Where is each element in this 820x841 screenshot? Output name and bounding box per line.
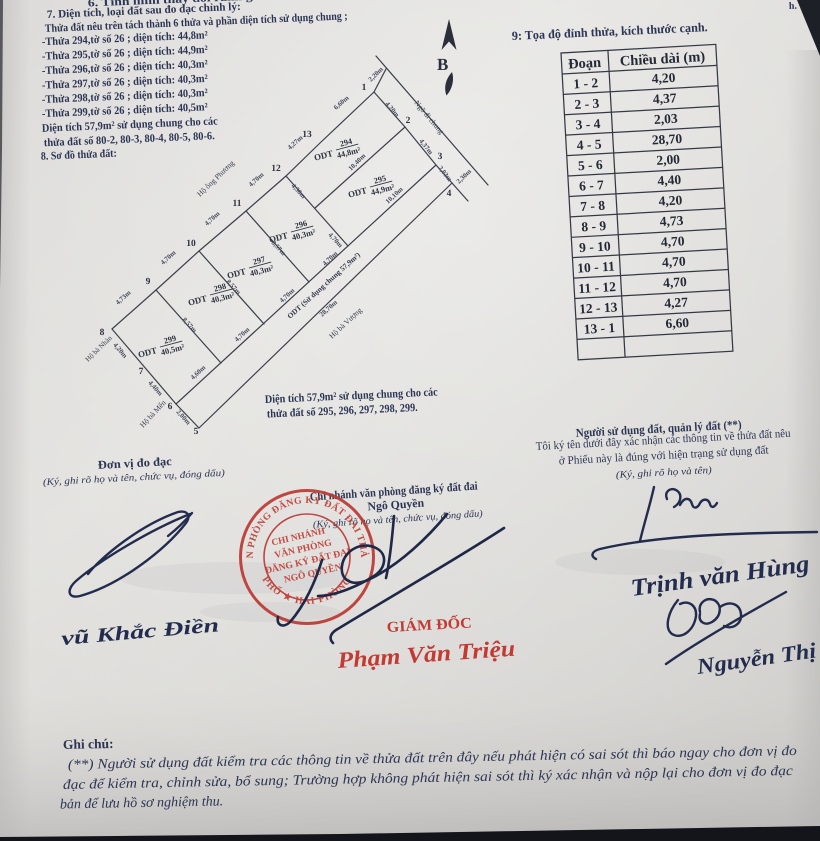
svg-text:6: 6 bbox=[168, 402, 173, 412]
svg-text:Ghi chú:: Ghi chú: bbox=[63, 736, 114, 752]
svg-text:4 - 5: 4 - 5 bbox=[576, 136, 602, 152]
svg-text:4,70: 4,70 bbox=[662, 254, 687, 270]
svg-text:9: 9 bbox=[146, 277, 151, 287]
svg-text:6 - 7: 6 - 7 bbox=[579, 177, 605, 193]
svg-text:3: 3 bbox=[438, 152, 443, 162]
svg-text:12 - 13: 12 - 13 bbox=[579, 299, 618, 316]
svg-text:10: 10 bbox=[186, 239, 196, 249]
svg-text:4: 4 bbox=[447, 189, 452, 199]
svg-text:4,70: 4,70 bbox=[660, 233, 685, 249]
svg-text:2,00: 2,00 bbox=[656, 152, 681, 168]
svg-text:bản để lưu hồ sơ nghiệm thu.: bản để lưu hồ sơ nghiệm thu. bbox=[60, 794, 224, 812]
svg-text:10 - 11: 10 - 11 bbox=[577, 259, 616, 276]
svg-text:13 - 1: 13 - 1 bbox=[583, 320, 616, 337]
svg-text:3 - 4: 3 - 4 bbox=[575, 116, 601, 132]
svg-text:11 - 12: 11 - 12 bbox=[578, 279, 617, 296]
svg-text:2,03: 2,03 bbox=[654, 111, 679, 127]
svg-text:5 - 6: 5 - 6 bbox=[578, 157, 604, 173]
svg-text:4,70: 4,70 bbox=[663, 274, 688, 290]
svg-text:1: 1 bbox=[362, 83, 367, 93]
svg-text:B: B bbox=[437, 55, 448, 74]
svg-text:4,37: 4,37 bbox=[652, 90, 677, 106]
svg-text:13: 13 bbox=[302, 130, 312, 140]
svg-text:11: 11 bbox=[233, 199, 242, 209]
svg-text:12: 12 bbox=[271, 164, 281, 174]
svg-text:7 - 8: 7 - 8 bbox=[580, 198, 606, 214]
svg-text:Đoạn: Đoạn bbox=[568, 55, 602, 73]
svg-text:8 - 9: 8 - 9 bbox=[581, 218, 607, 234]
svg-text:4,20: 4,20 bbox=[658, 192, 683, 208]
svg-text:8: 8 bbox=[100, 328, 105, 338]
svg-text:4,20: 4,20 bbox=[651, 70, 676, 86]
svg-text:9 - 10: 9 - 10 bbox=[579, 238, 612, 255]
svg-text:1 - 2: 1 - 2 bbox=[573, 75, 599, 91]
svg-text:2 - 3: 2 - 3 bbox=[574, 96, 600, 112]
svg-text:6,60: 6,60 bbox=[665, 315, 690, 331]
svg-text:28,70: 28,70 bbox=[651, 131, 682, 148]
svg-text:7: 7 bbox=[139, 367, 144, 377]
svg-text:h.: h. bbox=[789, 1, 798, 12]
svg-text:4,27: 4,27 bbox=[664, 294, 689, 310]
svg-text:5: 5 bbox=[194, 427, 199, 437]
svg-text:4,73: 4,73 bbox=[659, 213, 684, 229]
svg-text:2: 2 bbox=[406, 116, 411, 126]
svg-text:4,40: 4,40 bbox=[657, 172, 682, 188]
